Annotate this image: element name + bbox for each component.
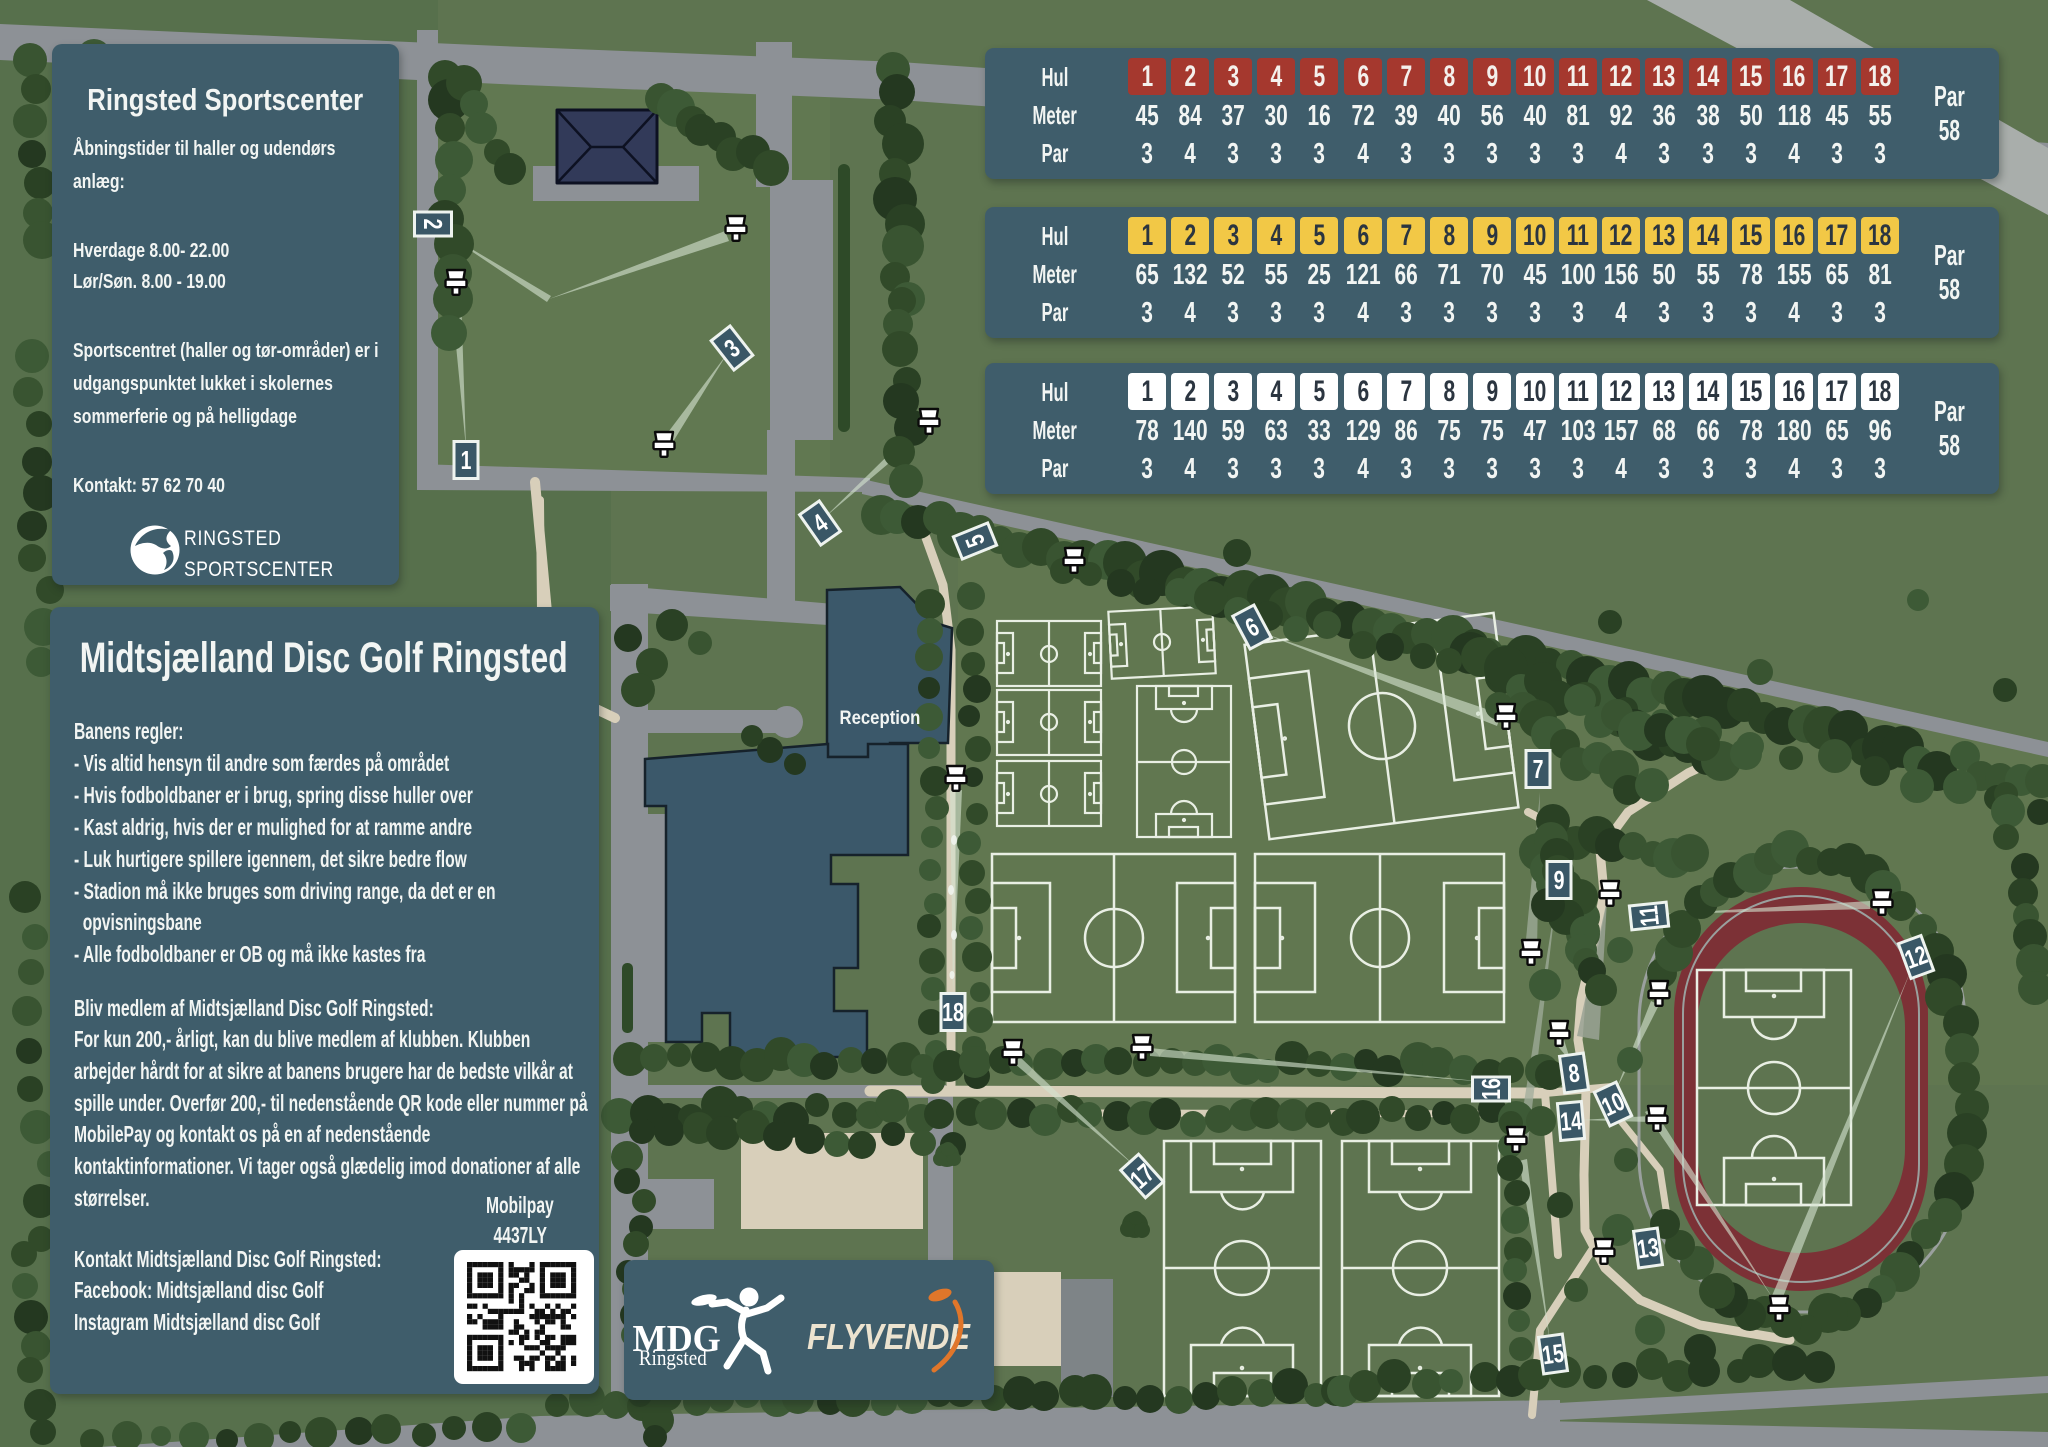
svg-text:FLYVENDE: FLYVENDE — [807, 1318, 971, 1358]
svg-text:Ringsted: Ringsted — [639, 1347, 708, 1370]
